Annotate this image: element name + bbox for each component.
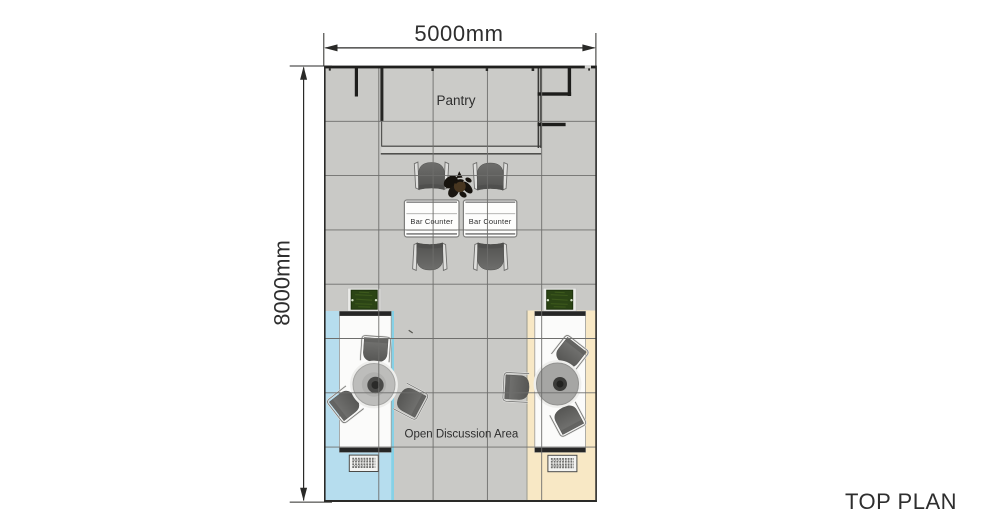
svg-text:Open Discussion Area: Open Discussion Area	[405, 429, 519, 441]
svg-text:Bar Counter: Bar Counter	[469, 217, 512, 226]
svg-text:Pantry: Pantry	[436, 93, 475, 108]
svg-text:8000mm: 8000mm	[270, 240, 295, 326]
svg-text:TOP PLAN: TOP PLAN	[845, 489, 957, 514]
svg-text:5000mm: 5000mm	[414, 21, 503, 46]
svg-text:Bar Counter: Bar Counter	[410, 217, 453, 226]
